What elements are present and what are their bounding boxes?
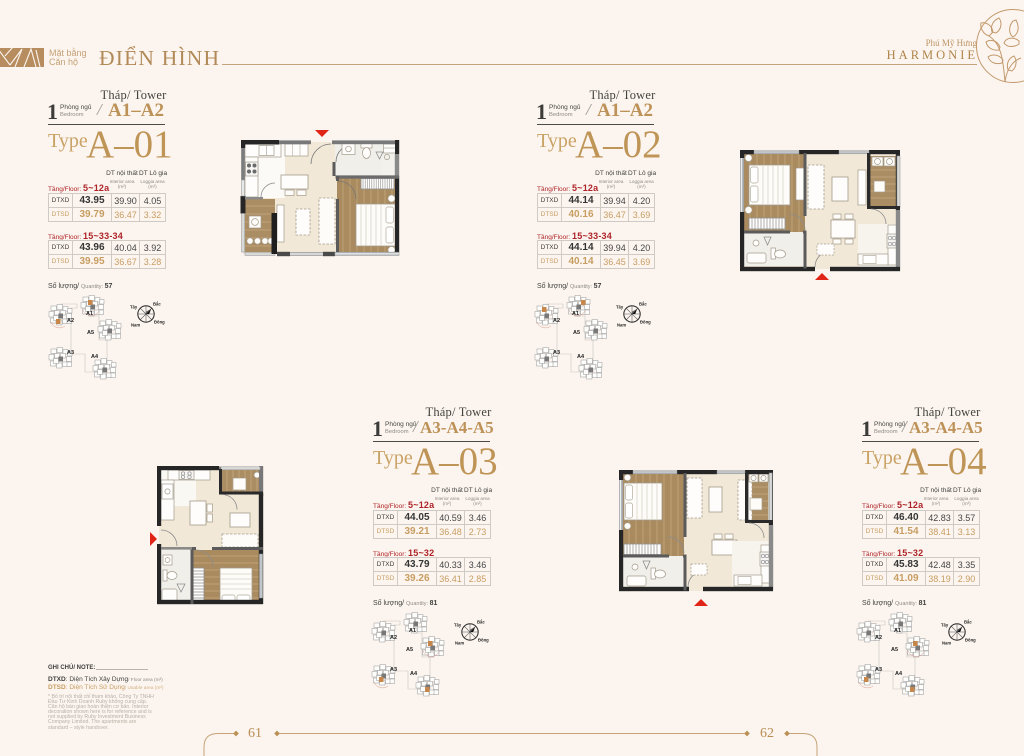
svg-text:A1: A1 [572, 311, 579, 317]
svg-text:A2: A2 [390, 635, 397, 641]
svg-text:A5: A5 [891, 647, 898, 653]
svg-text:A4: A4 [91, 354, 99, 360]
svg-text:A1: A1 [409, 628, 416, 634]
svg-text:A5: A5 [87, 330, 94, 336]
svg-text:A2: A2 [67, 318, 74, 324]
svg-text:A1: A1 [894, 628, 901, 634]
svg-text:A1: A1 [86, 311, 93, 317]
svg-text:A4: A4 [895, 671, 903, 677]
svg-text:A5: A5 [406, 647, 413, 653]
svg-text:A4: A4 [410, 671, 418, 677]
svg-text:A3: A3 [553, 350, 560, 356]
svg-text:A5: A5 [573, 330, 580, 336]
svg-text:A2: A2 [553, 318, 560, 324]
svg-text:A2: A2 [875, 635, 882, 641]
svg-text:A4: A4 [577, 354, 585, 360]
svg-text:A3: A3 [67, 350, 74, 356]
svg-text:A3: A3 [875, 667, 882, 673]
svg-text:A3: A3 [390, 667, 397, 673]
